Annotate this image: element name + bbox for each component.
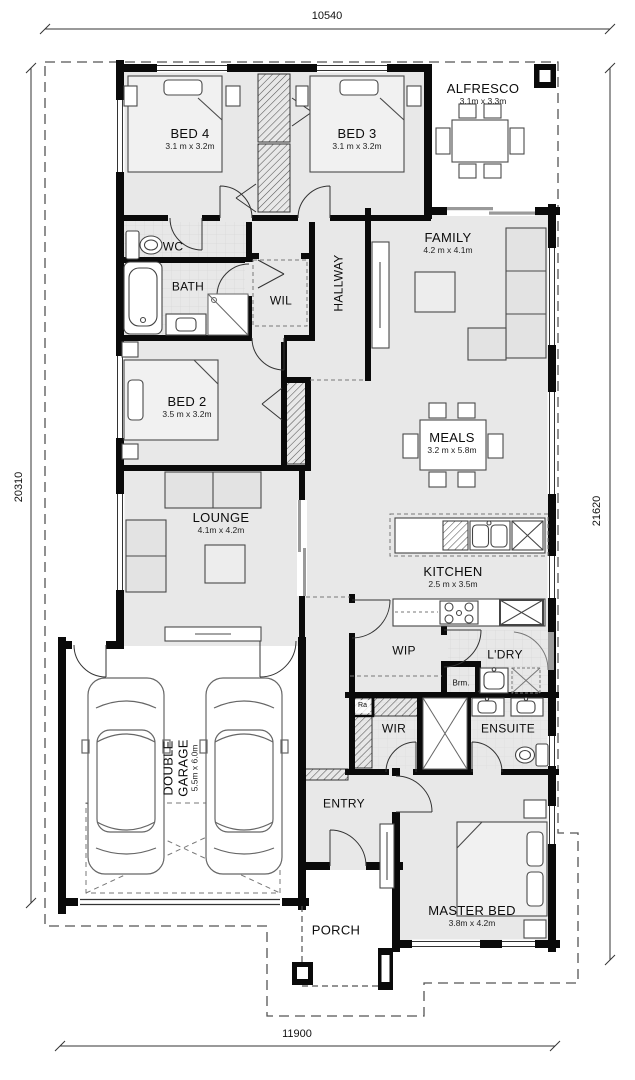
room-label-alfresco: ALFRESCO 3.1m x 3.3m (447, 82, 519, 106)
garage-size: 5.5m x 6.0m (191, 735, 201, 801)
room-label-bed2: BED 2 3.5 m x 3.2m (162, 395, 211, 419)
dimension-top: 10540 (312, 10, 343, 22)
bathtub-icon (124, 262, 162, 334)
hallway-name: HALLWAY (332, 254, 345, 311)
bed3-name: BED 3 (332, 127, 381, 142)
garage-door (78, 896, 282, 908)
bed4-size: 3.1 m x 3.2m (165, 142, 214, 152)
cooktop-bench-icon (393, 599, 545, 626)
dimension-left: 20310 (13, 472, 25, 503)
room-label-ensuite: ENSUITE (481, 722, 535, 735)
room-label-ra: Ra (358, 702, 367, 710)
master-size: 3.8m x 4.2m (428, 919, 516, 929)
room-label-brm: Brm. (453, 680, 470, 689)
room-label-bed3: BED 3 3.1 m x 3.2m (332, 127, 381, 151)
room-label-wc: WC (163, 240, 184, 253)
kitchen-name: KITCHEN (423, 565, 482, 580)
master-name: MASTER BED (428, 904, 516, 919)
alfresco-name: ALFRESCO (447, 82, 519, 97)
family-name: FAMILY (423, 231, 472, 246)
alfresco-post (534, 64, 556, 88)
entry-cabinet-icon (380, 824, 394, 888)
ensuite-shower-icon (423, 698, 467, 769)
room-label-wir: WIR (382, 722, 406, 735)
garage-side-door-gap (72, 641, 106, 649)
room-label-master: MASTER BED 3.8m x 4.2m (428, 904, 516, 928)
lounge-tv-unit-icon (165, 627, 261, 641)
kitchen-size: 2.5 m x 3.5m (423, 580, 482, 590)
room-label-bed4: BED 4 3.1 m x 3.2m (165, 127, 214, 151)
brm-name: Brm. (453, 680, 470, 689)
lounge-size: 4.1m x 4.2m (193, 526, 250, 536)
wc-name: WC (163, 240, 184, 253)
family-tv-unit-icon (372, 242, 389, 348)
wip-name: WIP (392, 644, 416, 657)
alfresco-table-icon (436, 104, 524, 178)
laundry-trough-icon (480, 668, 508, 693)
bed3-bed-icon (296, 76, 421, 172)
bed2-name: BED 2 (162, 395, 211, 410)
ra-name: Ra (358, 702, 367, 710)
bed2-size: 3.5 m x 3.2m (162, 410, 211, 420)
ensuite-name: ENSUITE (481, 722, 535, 735)
room-label-family: FAMILY 4.2 m x 4.1m (423, 231, 472, 255)
kitchen-island-sink-icon (395, 518, 545, 553)
room-label-meals: MEALS 3.2 m x 5.8m (427, 431, 476, 455)
lounge-name: LOUNGE (193, 511, 250, 526)
room-label-wip: WIP (392, 644, 416, 657)
bed3-size: 3.1 m x 3.2m (332, 142, 381, 152)
wir-name: WIR (382, 722, 406, 735)
room-label-entry: ENTRY (323, 797, 365, 810)
entry-name: ENTRY (323, 797, 365, 810)
ldry-name: L'DRY (487, 648, 523, 661)
room-label-ldry: L'DRY (487, 648, 523, 661)
room-label-wil: WIL (270, 294, 292, 307)
shower-icon (208, 294, 248, 335)
room-label-bath: BATH (172, 280, 204, 293)
wil-name: WIL (270, 294, 292, 307)
porch-name: PORCH (312, 924, 360, 939)
porch-post (292, 962, 313, 985)
room-label-garage: DOUBLE GARAGE 5.5m x 6.0m (162, 735, 201, 801)
dimension-right: 21620 (591, 496, 603, 527)
floor-plan: BED 4 3.1 m x 3.2m BED 3 3.1 m x 3.2m AL… (0, 0, 635, 1080)
room-label-porch: PORCH (312, 924, 360, 939)
bath-name: BATH (172, 280, 204, 293)
dimension-bottom: 11900 (282, 1028, 312, 1040)
porch-pier (378, 948, 393, 990)
porch-edges (302, 906, 380, 986)
alfresco-size: 3.1m x 3.3m (447, 97, 519, 107)
bed4-name: BED 4 (165, 127, 214, 142)
meals-size: 3.2 m x 5.8m (427, 446, 476, 456)
floor-plan-drawing (0, 0, 635, 1080)
room-label-lounge: LOUNGE 4.1m x 4.2m (193, 511, 250, 535)
garage-name: DOUBLE GARAGE (162, 735, 191, 801)
room-label-kitchen: KITCHEN 2.5 m x 3.5m (423, 565, 482, 589)
room-label-hallway: HALLWAY (332, 254, 345, 311)
meals-name: MEALS (427, 431, 476, 446)
family-size: 4.2 m x 4.1m (423, 246, 472, 256)
vanity-icon (166, 314, 206, 335)
